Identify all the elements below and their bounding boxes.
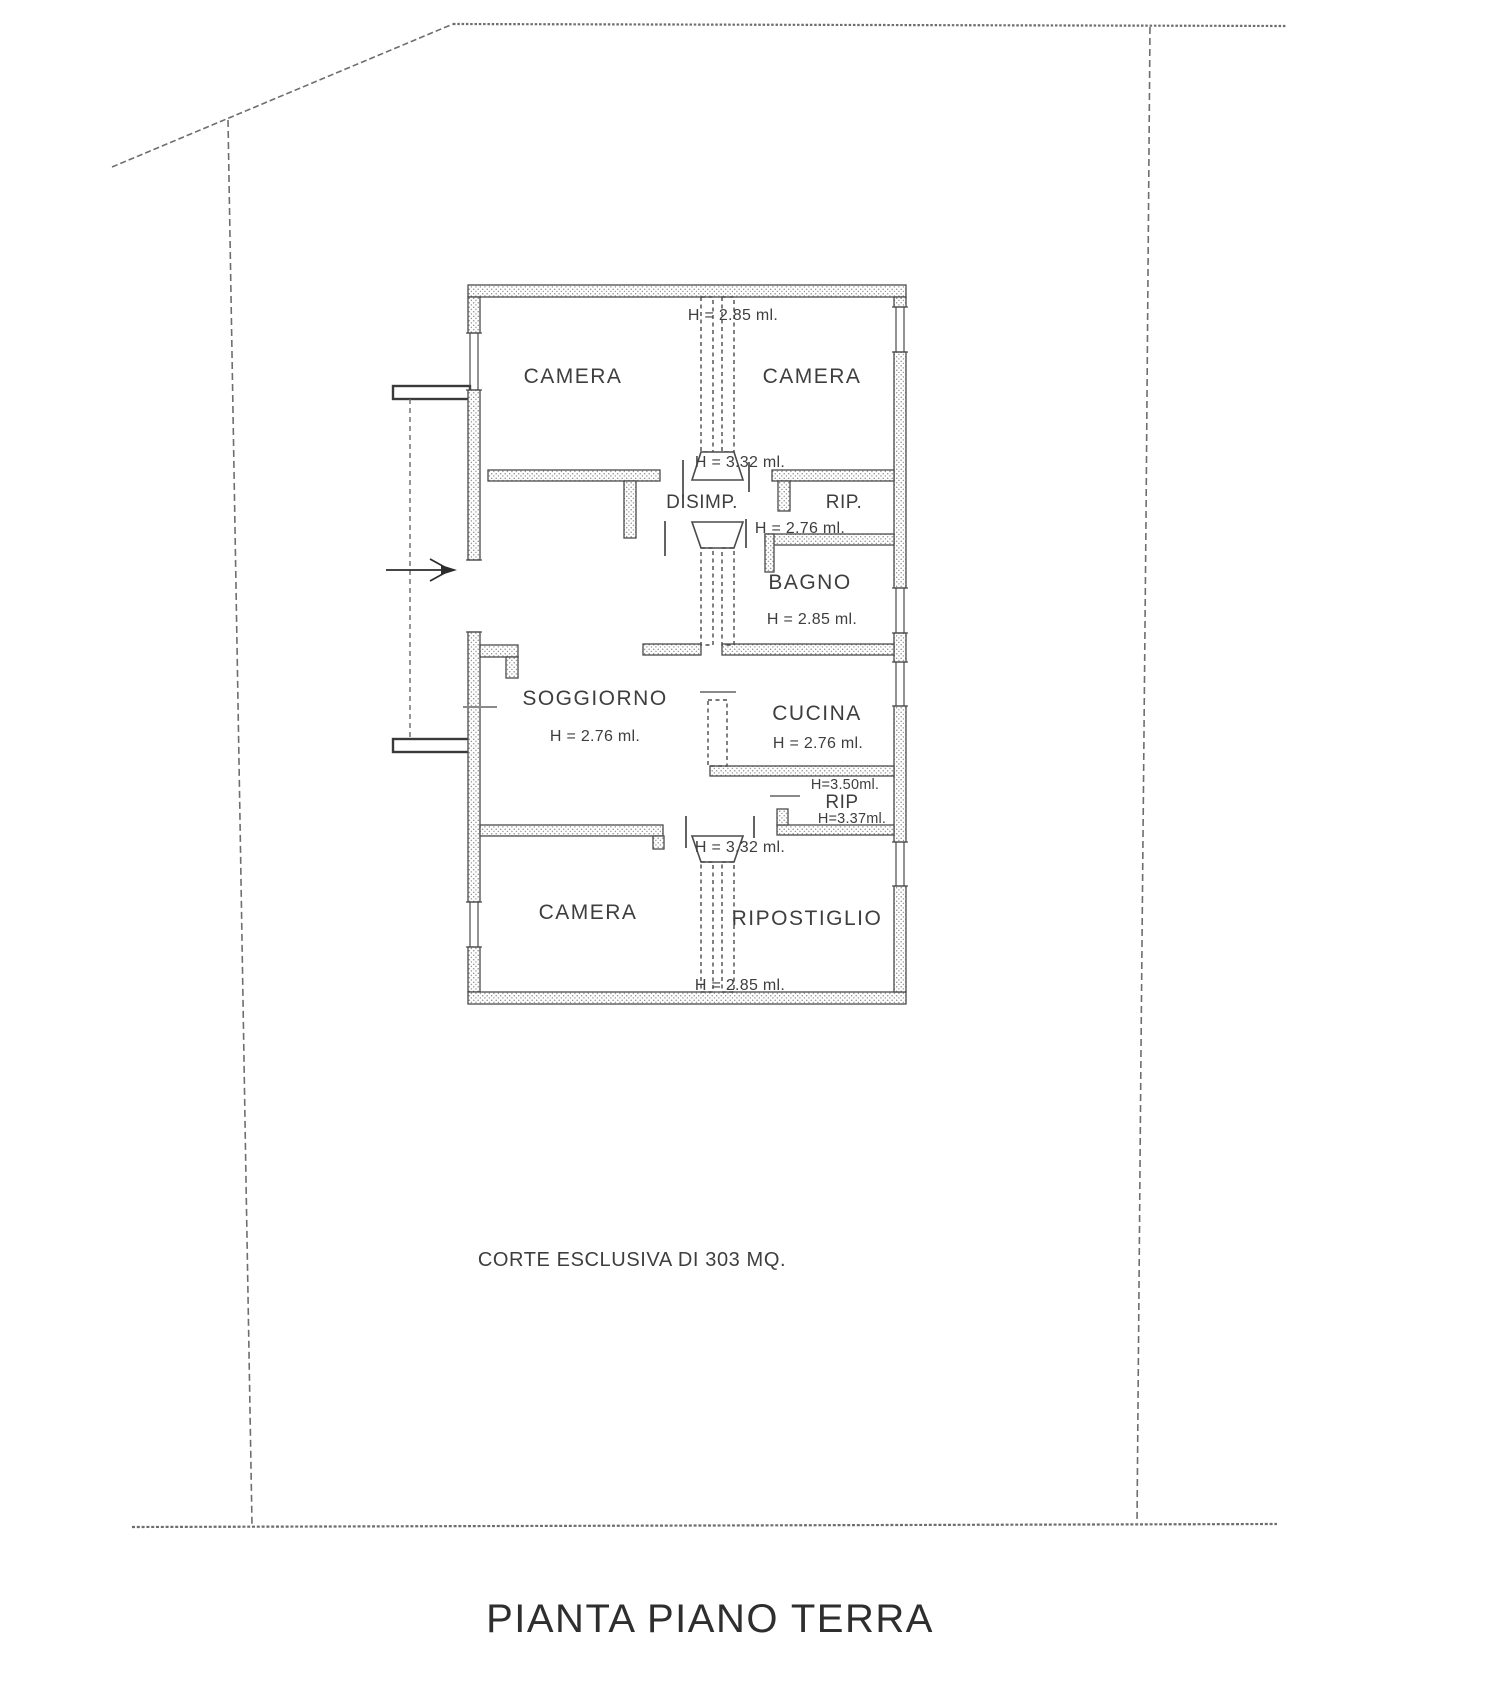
room-label-disimpegno: DISIMP.: [666, 492, 738, 513]
height-label-bagno: H = 2.85 ml.: [767, 611, 857, 628]
height-label-cucina: H = 2.76 ml.: [773, 735, 863, 752]
wall-disimp-west-stub: [624, 481, 636, 538]
wall-camera-tl-south: [488, 470, 660, 481]
wall-exterior-left: [468, 390, 480, 560]
wall-exterior-top: [468, 285, 906, 297]
height-label-bottom-shaft: H = 2.85 ml.: [695, 977, 785, 994]
wall-soggiorno-pier-stub: [506, 657, 518, 678]
room-label-cucina: CUCINA: [772, 702, 862, 725]
wall-rip-mid-south-cap: [777, 809, 788, 825]
wall-exterior-right: [894, 706, 906, 842]
wall-exterior-right: [894, 297, 906, 307]
height-label-soggiorno: H = 2.76 ml.: [550, 728, 640, 745]
courtyard-label: CORTE ESCLUSIVA DI 303 MQ.: [478, 1249, 786, 1271]
wall-exterior-left: [468, 297, 480, 333]
wall-exterior-bottom: [468, 992, 906, 1004]
room-label-bagno: BAGNO: [768, 571, 851, 594]
room-label-rip-top: RIP.: [826, 492, 863, 513]
room-label-ripostiglio: RIPOSTIGLIO: [732, 907, 883, 930]
porch-slab-bottom: [393, 739, 470, 752]
wall-rip-top-south-cap: [765, 534, 774, 572]
wall-exterior-left: [468, 632, 480, 902]
height-label-lower-shaft: H = 3.32 ml.: [695, 839, 785, 856]
room-label-camera-top-left: CAMERA: [524, 365, 623, 388]
wall-rip-top-stub: [778, 481, 790, 511]
wall-camera-bottom-north: [480, 825, 663, 836]
height-label-rip-mid-upper: H=3.50ml.: [811, 777, 879, 793]
wall-camera-bottom-north-cap: [653, 836, 664, 849]
height-label-top-shaft: H = 2.85 ml.: [688, 307, 778, 324]
porch-slab-top: [393, 386, 470, 399]
wall-exterior-right: [894, 352, 906, 588]
wall-bagno-south-b: [722, 644, 894, 655]
room-label-camera-bottom: CAMERA: [539, 901, 638, 924]
wall-exterior-right: [894, 633, 906, 662]
wall-exterior-left: [468, 947, 480, 992]
room-label-camera-top-right: CAMERA: [763, 365, 862, 388]
wall-exterior-right: [894, 886, 906, 992]
floor-plan-drawing: H = 2.85 ml. CAMERA CAMERA H = 3.32 ml. …: [0, 0, 1500, 1694]
page-title: PIANTA PIANO TERRA: [486, 1597, 934, 1641]
wall-bagno-south-a: [643, 644, 701, 655]
room-label-soggiorno: SOGGIORNO: [522, 687, 667, 710]
shaft-mid-flare: [692, 522, 743, 548]
height-label-rip-top: H = 2.76 ml.: [755, 520, 845, 537]
room-label-rip-mid: RIP: [825, 792, 858, 813]
wall-cucina-south: [710, 766, 894, 776]
height-label-upper-shaft: H = 3.32 ml.: [695, 454, 785, 471]
height-label-rip-mid-lower: H=3.37ml.: [818, 811, 886, 827]
wall-soggiorno-pier: [480, 645, 518, 657]
wall-camera-tr-south: [772, 470, 894, 481]
